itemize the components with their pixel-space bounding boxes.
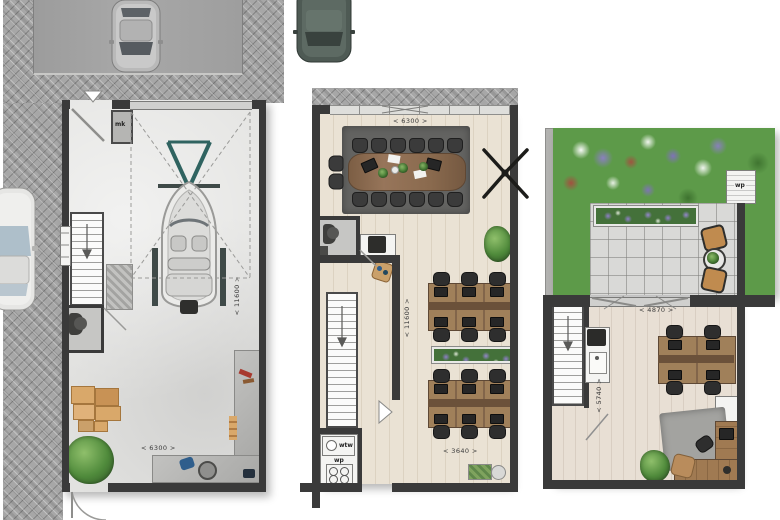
garage-bottom-door-swing — [72, 492, 106, 520]
door-marker-triangle — [379, 401, 392, 423]
stair-arrows — [83, 224, 572, 350]
entrance-arrow — [84, 91, 102, 102]
entry-door-leaf — [72, 109, 104, 141]
linework-overlay — [0, 0, 780, 520]
floorplan-canvas: mk < 11600 — [0, 0, 780, 520]
trailer-zone-markings — [131, 112, 250, 278]
terrace-door-swings — [592, 296, 688, 309]
window-ticks — [60, 233, 69, 257]
wc-door-leaf — [360, 250, 376, 266]
wc-door-leaf — [104, 308, 126, 330]
landing-door-leaf — [586, 414, 608, 440]
front-door-cross — [382, 106, 428, 113]
ceiling-fan-icon — [484, 150, 527, 197]
